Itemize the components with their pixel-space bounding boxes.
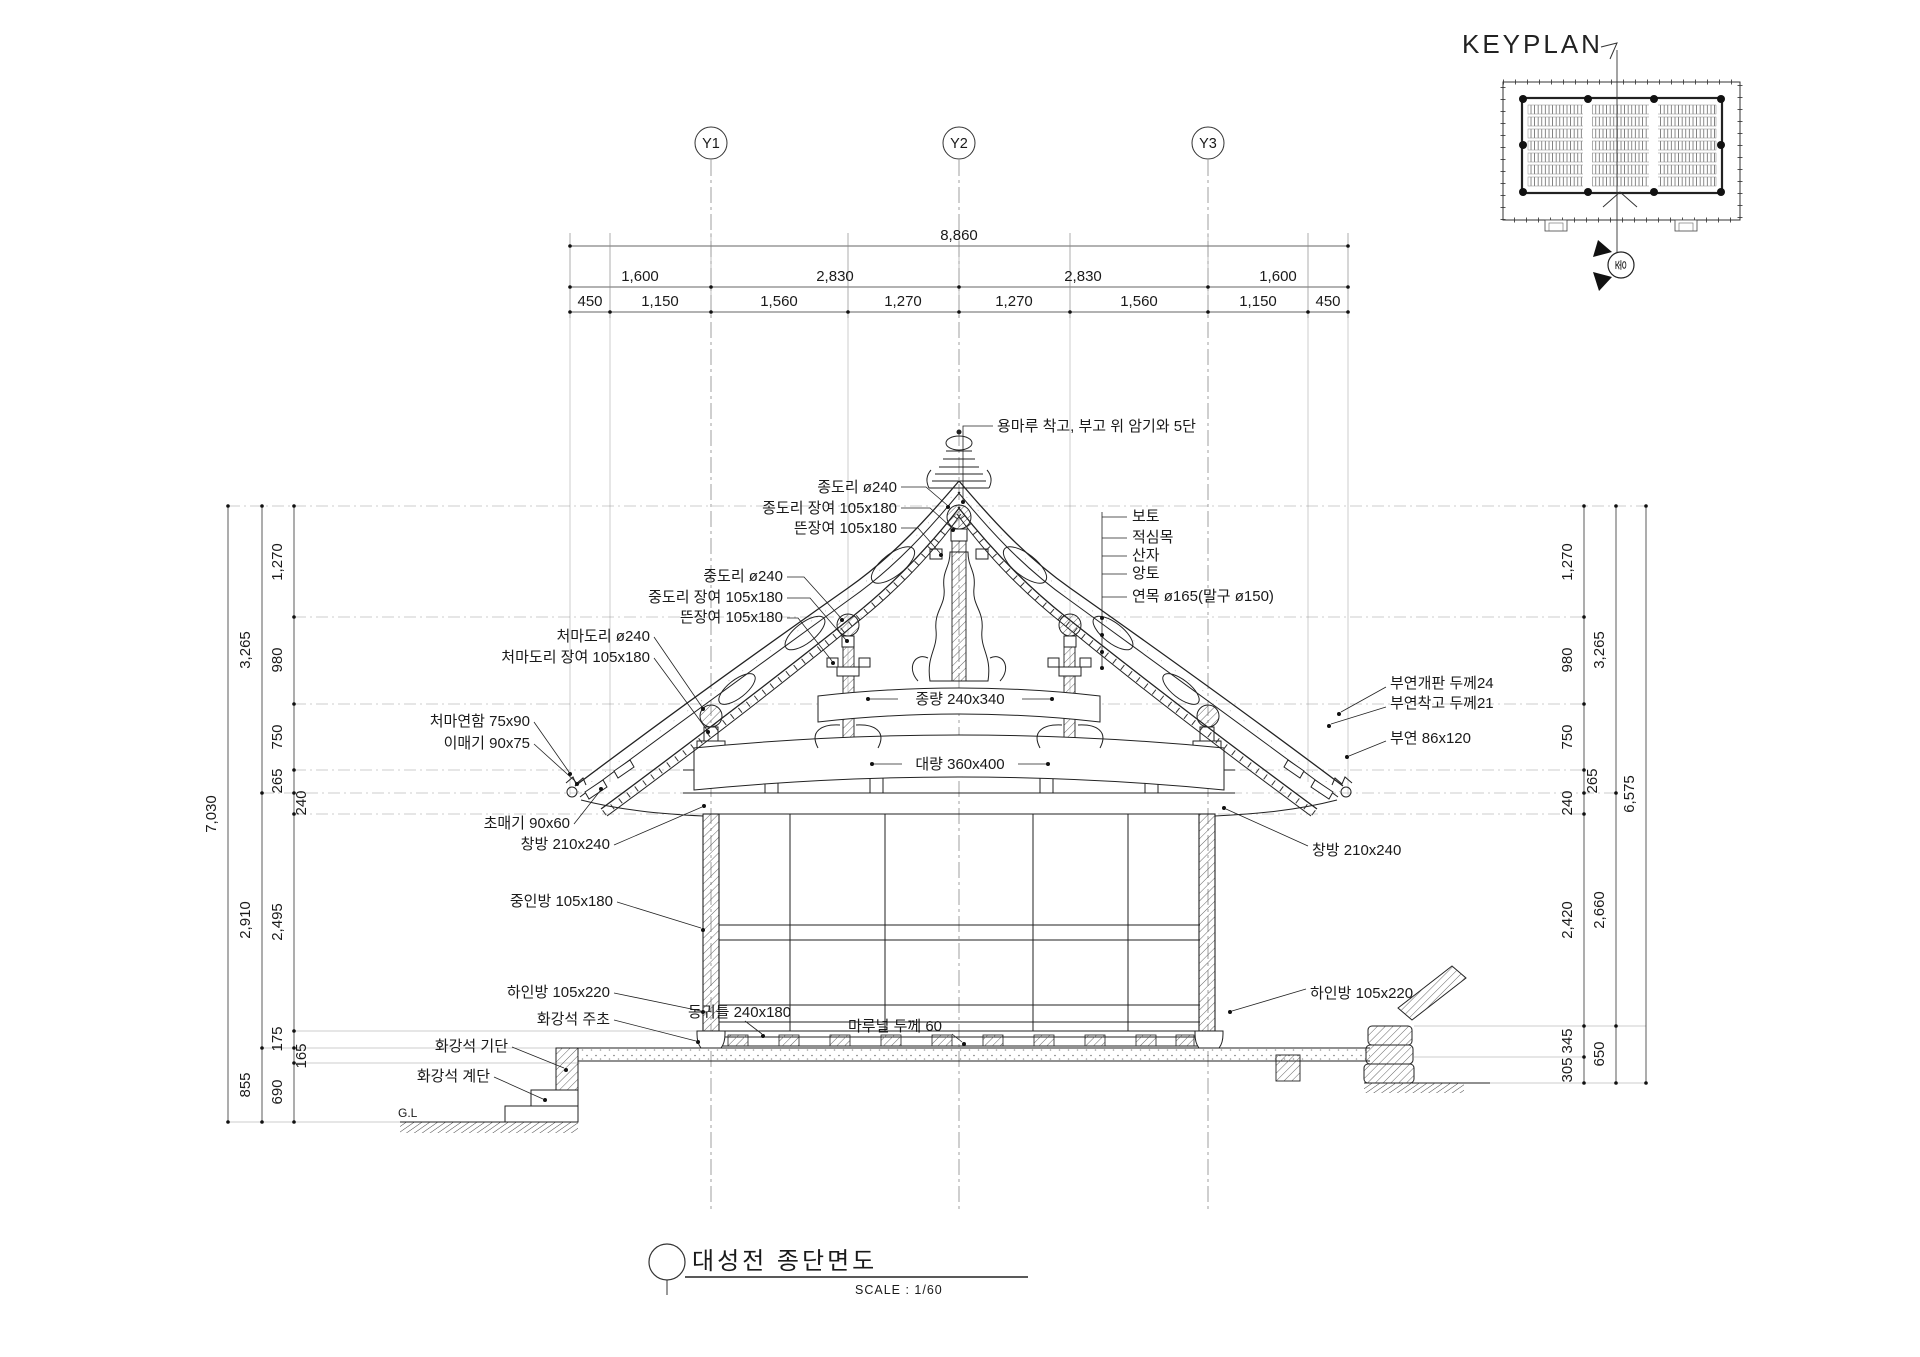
callout-sanja: 산자 (1132, 547, 1160, 564)
dim-top-span: 2,830 (816, 268, 854, 285)
callout-boto: 보토 (1132, 508, 1160, 525)
dim-right-mid: 650 (1591, 1041, 1608, 1066)
dim-right-total: 6,575 (1621, 775, 1638, 813)
dim-top-span: 1,600 (1259, 268, 1297, 285)
dim-left-inner: 1,270 (269, 543, 286, 581)
keyplan-title: KEYPLAN (1462, 29, 1603, 59)
dim-left-inner: 165 (293, 1043, 310, 1068)
callout-jeoksimmok: 적심목 (1132, 529, 1173, 546)
dim-right-inner: 2,420 (1559, 901, 1576, 939)
callout-changbang-right: 창방 210x240 (1312, 842, 1401, 859)
callout-gidan: 화강석 기단 (435, 1038, 508, 1055)
dim-left-inner: 240 (293, 790, 310, 815)
left-dimensions: 7,030 3,265 2,910 855 1,270 980 750 265 … (203, 504, 310, 1124)
callout-gyedan: 화강석 계단 (417, 1068, 490, 1085)
keyplan-section-mark: 종 (1614, 259, 1628, 270)
grid-bubble-y1: Y1 (702, 136, 720, 152)
grid-bubble-y3: Y3 (1199, 136, 1217, 152)
dim-top-span: 2,830 (1064, 268, 1102, 285)
dim-right-inner: 240 (1559, 790, 1576, 815)
dim-top-sub: 1,150 (641, 293, 679, 310)
callout-yongmaru: 용마루 착고, 부고 위 암기와 5단 (997, 418, 1196, 435)
dim-top-sub: 450 (1315, 293, 1340, 310)
dim-left-inner: 980 (269, 647, 286, 672)
callout-angto: 앙토 (1132, 565, 1160, 582)
dim-top-span: 1,600 (621, 268, 659, 285)
dim-right-inner: 980 (1559, 647, 1576, 672)
callout-tteunjangyeo-2: 뜬장여 105x180 (680, 609, 783, 626)
title-block: 대성전 종단면도 SCALE : 1/60 (649, 1244, 1028, 1297)
callout-junginbang: 중인방 105x180 (510, 893, 613, 910)
dim-top-sub: 1,560 (760, 293, 798, 310)
dim-right-inner: 1,270 (1559, 543, 1576, 581)
dim-left-inner: 690 (269, 1079, 286, 1104)
callout-jungdori-jangyeo: 중도리 장여 105x180 (648, 589, 783, 606)
grid-bubble-y2: Y2 (950, 136, 968, 152)
callout-donggwiteul: 동귀틀 240x180 (688, 1004, 791, 1021)
callout-jongdori-jangyeo: 종도리 장여 105x180 (762, 500, 897, 517)
callout-maruneol: 마루널 두께 60 (848, 1018, 942, 1035)
callout-cheomadori: 처마도리 ø240 (556, 628, 650, 645)
dim-left-mid: 855 (237, 1072, 254, 1097)
callout-jungdori: 중도리 ø240 (703, 568, 783, 585)
dim-left-total: 7,030 (203, 795, 220, 833)
keyplan: KEYPLAN 종 (1462, 29, 1740, 291)
drawing-title: 대성전 종단면도 (692, 1248, 877, 1275)
callout-hainbang-right: 하인방 105x220 (1310, 985, 1413, 1002)
drawing-scale: SCALE : 1/60 (855, 1283, 943, 1297)
dim-right-inner: 345 (1559, 1028, 1576, 1053)
callout-cheomadori-jangyeo: 처마도리 장여 105x180 (501, 649, 650, 666)
dim-right-inner: 305 (1559, 1057, 1576, 1082)
callout-yeonmok: 연목 ø165(말구 ø150) (1132, 588, 1274, 605)
right-dimensions: 1,270 980 750 265 240 2,420 345 305 3,26… (1559, 504, 1648, 1085)
dim-left-mid: 3,265 (237, 631, 254, 669)
dim-right-mid: 2,660 (1591, 891, 1608, 929)
drawing-sheet: Y1 Y2 Y3 8,860 1,600 2,830 2,830 1,600 4… (0, 0, 1920, 1357)
callout-cheomayeonham: 처마연함 75x90 (430, 713, 530, 730)
dim-left-mid: 2,910 (237, 901, 254, 939)
dim-left-inner: 175 (269, 1026, 286, 1051)
dim-right-mid: 3,265 (1591, 631, 1608, 669)
callout-daeryang: 대량 360x400 (915, 756, 1004, 773)
callout-jongdori: 종도리 ø240 (817, 479, 897, 496)
callout-buyeon: 부연 86x120 (1390, 730, 1471, 747)
dim-top-sub: 1,150 (1239, 293, 1277, 310)
dim-left-inner: 265 (269, 768, 286, 793)
dim-top-sub: 1,560 (1120, 293, 1158, 310)
callout-ground-level: G.L (398, 1106, 418, 1120)
dim-top-sub: 450 (577, 293, 602, 310)
callout-buyeon-gaepan: 부연개판 두께24 (1390, 675, 1494, 692)
callout-jucho: 화강석 주초 (537, 1011, 610, 1028)
dim-right-inner: 750 (1559, 724, 1576, 749)
dim-left-inner: 750 (269, 724, 286, 749)
callout-jongryang: 종량 240x340 (915, 691, 1004, 708)
callout-imaegi: 이매기 90x75 (444, 735, 530, 752)
callout-tteunjangyeo-1: 뜬장여 105x180 (794, 520, 897, 537)
top-dimensions: 8,860 1,600 2,830 2,830 1,600 450 1,150 … (568, 227, 1350, 318)
dim-top-sub: 1,270 (995, 293, 1033, 310)
dim-top-total: 8,860 (940, 227, 978, 244)
title-bubble (649, 1244, 685, 1280)
callouts: 용마루 착고, 부고 위 암기와 5단 종도리 ø240 종도리 장여 105x… (398, 418, 1494, 1120)
callout-buyeon-chakgo: 부연착고 두께21 (1390, 695, 1494, 712)
dim-top-sub: 1,270 (884, 293, 922, 310)
callout-hainbang-left: 하인방 105x220 (507, 984, 610, 1001)
dim-right-inner: 265 (1584, 768, 1601, 793)
dim-left-inner: 2,495 (269, 903, 286, 941)
callout-chomaegi: 초매기 90x60 (484, 815, 570, 832)
grid-bubbles: Y1 Y2 Y3 (695, 127, 1224, 159)
callout-changbang-left: 창방 210x240 (521, 836, 610, 853)
section-drawing-canvas: Y1 Y2 Y3 8,860 1,600 2,830 2,830 1,600 4… (0, 0, 1920, 1357)
